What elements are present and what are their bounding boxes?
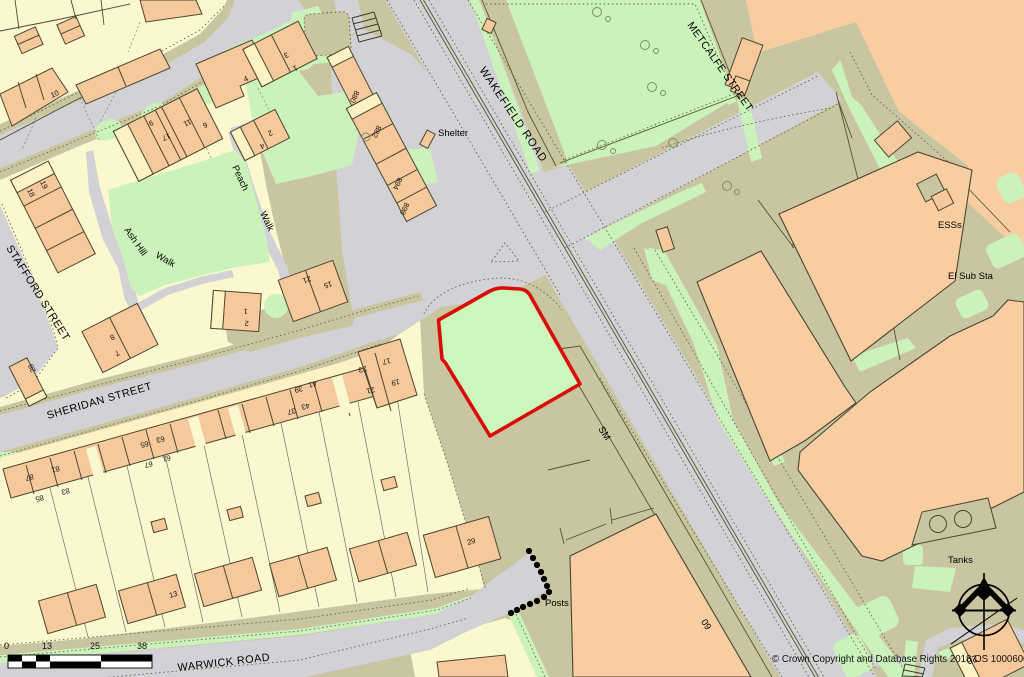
svg-text:El Sub Sta: El Sub Sta: [948, 271, 994, 282]
svg-text:© Crown Copyright and Database: © Crown Copyright and Database Rights 20…: [772, 654, 1024, 665]
svg-text:38: 38: [137, 641, 147, 651]
svg-text:0: 0: [4, 641, 9, 651]
svg-text:13: 13: [42, 641, 52, 651]
svg-text:Tanks: Tanks: [948, 555, 973, 566]
svg-text:ESSs: ESSs: [938, 220, 962, 231]
svg-text:Shelter: Shelter: [438, 128, 468, 139]
svg-text:2: 2: [244, 319, 249, 328]
svg-text:Posts: Posts: [545, 598, 569, 609]
svg-text:25: 25: [90, 641, 100, 651]
svg-text:1: 1: [243, 307, 248, 316]
